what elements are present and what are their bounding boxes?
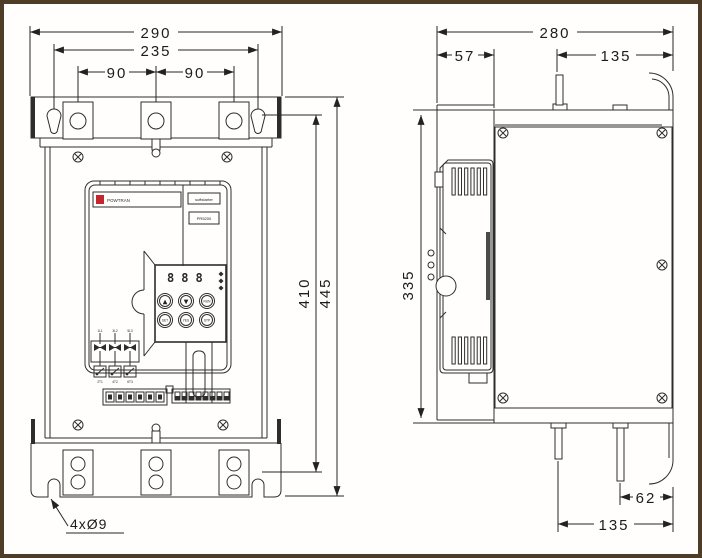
button-label: STP	[204, 318, 210, 322]
keypad-button-stop: STP	[200, 313, 215, 328]
top-flange-curve	[649, 73, 673, 97]
front-bottom-rail	[31, 419, 281, 497]
dim-label-62: 62	[636, 490, 657, 507]
front-dim-mount-height: 410	[262, 115, 322, 472]
technical-drawing: 290 235 90 90	[0, 0, 702, 558]
keyhole-slot-top-left	[47, 109, 61, 134]
keypad-panel: 888 ▲ ▼ RUN SET YES STP	[155, 265, 226, 342]
thyristor-pair-icon	[124, 344, 136, 351]
bottom-stud-short	[555, 428, 562, 459]
stud-cap	[613, 423, 628, 428]
led-indicator	[219, 279, 224, 284]
keypad-button-run: RUN	[200, 294, 215, 309]
screw-icon	[657, 128, 667, 138]
terminal-hole	[226, 113, 242, 129]
screw-icon	[222, 152, 232, 162]
brand-logo-icon	[96, 195, 104, 204]
terminal-hole	[148, 113, 164, 129]
button-label: RUN	[204, 299, 212, 303]
terminal-hole	[149, 475, 163, 489]
cover-crenellation	[100, 181, 220, 185]
control-terminal-strips	[103, 386, 230, 405]
dim-label-235: 235	[140, 43, 171, 60]
model-label: PR5200	[197, 216, 212, 221]
button-label: ▲	[163, 298, 168, 305]
screw-icon	[657, 260, 667, 270]
side-bottom-surface	[413, 423, 673, 484]
side-mounting-plate	[495, 127, 672, 408]
keypad-button-down: ▼	[179, 294, 194, 309]
terminal-cells-left	[106, 392, 164, 402]
heatsink-edge-left	[31, 97, 35, 138]
open-flap	[132, 251, 155, 356]
screw-icon	[657, 393, 667, 403]
screw-icon	[73, 420, 83, 430]
hinge-knuckle	[428, 262, 434, 268]
cover-latch	[435, 172, 443, 187]
hole-note: 4xØ9	[51, 499, 124, 533]
side-dim-front-depth: 57	[437, 47, 494, 108]
dim-label-280: 280	[539, 25, 570, 42]
scr-terminal-label: 5L3	[127, 329, 133, 333]
thyristor-pair-icon	[94, 344, 106, 351]
terminal-hole	[227, 475, 241, 489]
led-indicator	[219, 286, 224, 291]
stud-base-pad	[613, 105, 627, 110]
terminal-hole	[71, 457, 85, 471]
screw-icon	[218, 420, 228, 430]
terminal-hole	[70, 113, 86, 129]
bottom-tab	[469, 373, 487, 383]
button-label: YES	[183, 318, 189, 322]
scr-schematic: 1L1 3L2 5L3 2T1 4T2 6T3	[91, 329, 139, 384]
dim-label-135-top: 135	[600, 48, 631, 65]
stud-cap	[551, 423, 566, 428]
vent-slots-bottom	[452, 337, 487, 364]
dim-label-335: 335	[400, 269, 417, 300]
scr-terminal-label: 2T1	[97, 380, 103, 384]
top-stud	[556, 75, 563, 105]
side-view: 280 57 135	[400, 24, 673, 534]
thyristor-pair-icon	[109, 344, 121, 351]
dim-label-90-left: 90	[107, 65, 128, 82]
hole-note-label: 4xØ9	[70, 516, 107, 532]
hinge-knuckle	[428, 250, 434, 256]
dim-label-57: 57	[455, 48, 476, 65]
side-front-section	[428, 105, 494, 423]
button-label: SET	[162, 318, 168, 322]
keypad-button-set: SET	[158, 313, 173, 328]
dim-label-290: 290	[140, 25, 171, 42]
seven-segment-display: 888	[167, 271, 210, 285]
terminal-hole	[71, 475, 85, 489]
hinge-knuckle	[428, 274, 434, 280]
dim-label-410: 410	[296, 277, 313, 308]
bypass-contact-icon	[109, 366, 121, 377]
knob-profile	[436, 276, 456, 296]
keyhole-slot-top-right	[251, 109, 265, 134]
drawing-page: 290 235 90 90	[0, 0, 702, 558]
scr-terminal-label: 6T3	[127, 380, 133, 384]
heatsink-edge-right	[277, 419, 281, 444]
screw-icon	[73, 152, 83, 162]
screw-icon	[498, 393, 508, 403]
keypad-button-up: ▲	[158, 294, 173, 309]
side-top-surface	[413, 73, 673, 461]
dim-label-135-bottom: 135	[598, 517, 629, 534]
side-dim-top-stud-offset: 135	[557, 47, 673, 72]
center-pin	[152, 431, 160, 443]
terminal-cells-right	[175, 392, 229, 400]
screw-icon	[498, 128, 508, 138]
bottom-flange-curve	[649, 461, 673, 484]
bypass-contact-icon	[124, 366, 136, 377]
brand-label: POWTRAN	[107, 198, 130, 203]
scr-terminal-label: 3L2	[112, 329, 118, 333]
bottom-stud-long	[617, 428, 624, 481]
scr-terminal-label: 4T2	[112, 380, 118, 384]
bypass-contact-icon	[94, 366, 106, 377]
scr-terminal-label: 1L1	[97, 329, 103, 333]
keypad-button-yes: YES	[179, 313, 194, 328]
terminal-strip-left	[103, 389, 167, 405]
side-dim-body-height: 335	[400, 115, 421, 418]
front-top-rail	[31, 97, 281, 157]
cover-profile	[440, 160, 493, 373]
front-view: 290 235 90 90	[30, 24, 344, 533]
page-border	[2, 2, 700, 556]
heatsink-edge-right	[277, 97, 281, 138]
button-label: ▼	[184, 298, 189, 305]
dim-label-90-right: 90	[185, 65, 206, 82]
dim-label-445: 445	[317, 277, 334, 308]
terminal-hole	[149, 457, 163, 471]
heatsink-edge-left	[31, 419, 35, 444]
center-pin	[152, 139, 160, 150]
front-dim-overall-height: 445	[285, 97, 344, 496]
terminal-hole	[227, 457, 241, 471]
flap-finger-notch	[132, 290, 144, 314]
product-label: softstarter	[195, 197, 213, 202]
led-indicator	[219, 272, 224, 277]
front-cover: POWTRAN softstarter PR5200 888 ▲	[85, 181, 231, 403]
side-slot-bar	[486, 232, 490, 300]
center-pin-hole	[152, 149, 160, 157]
vent-slots-top	[452, 168, 487, 195]
